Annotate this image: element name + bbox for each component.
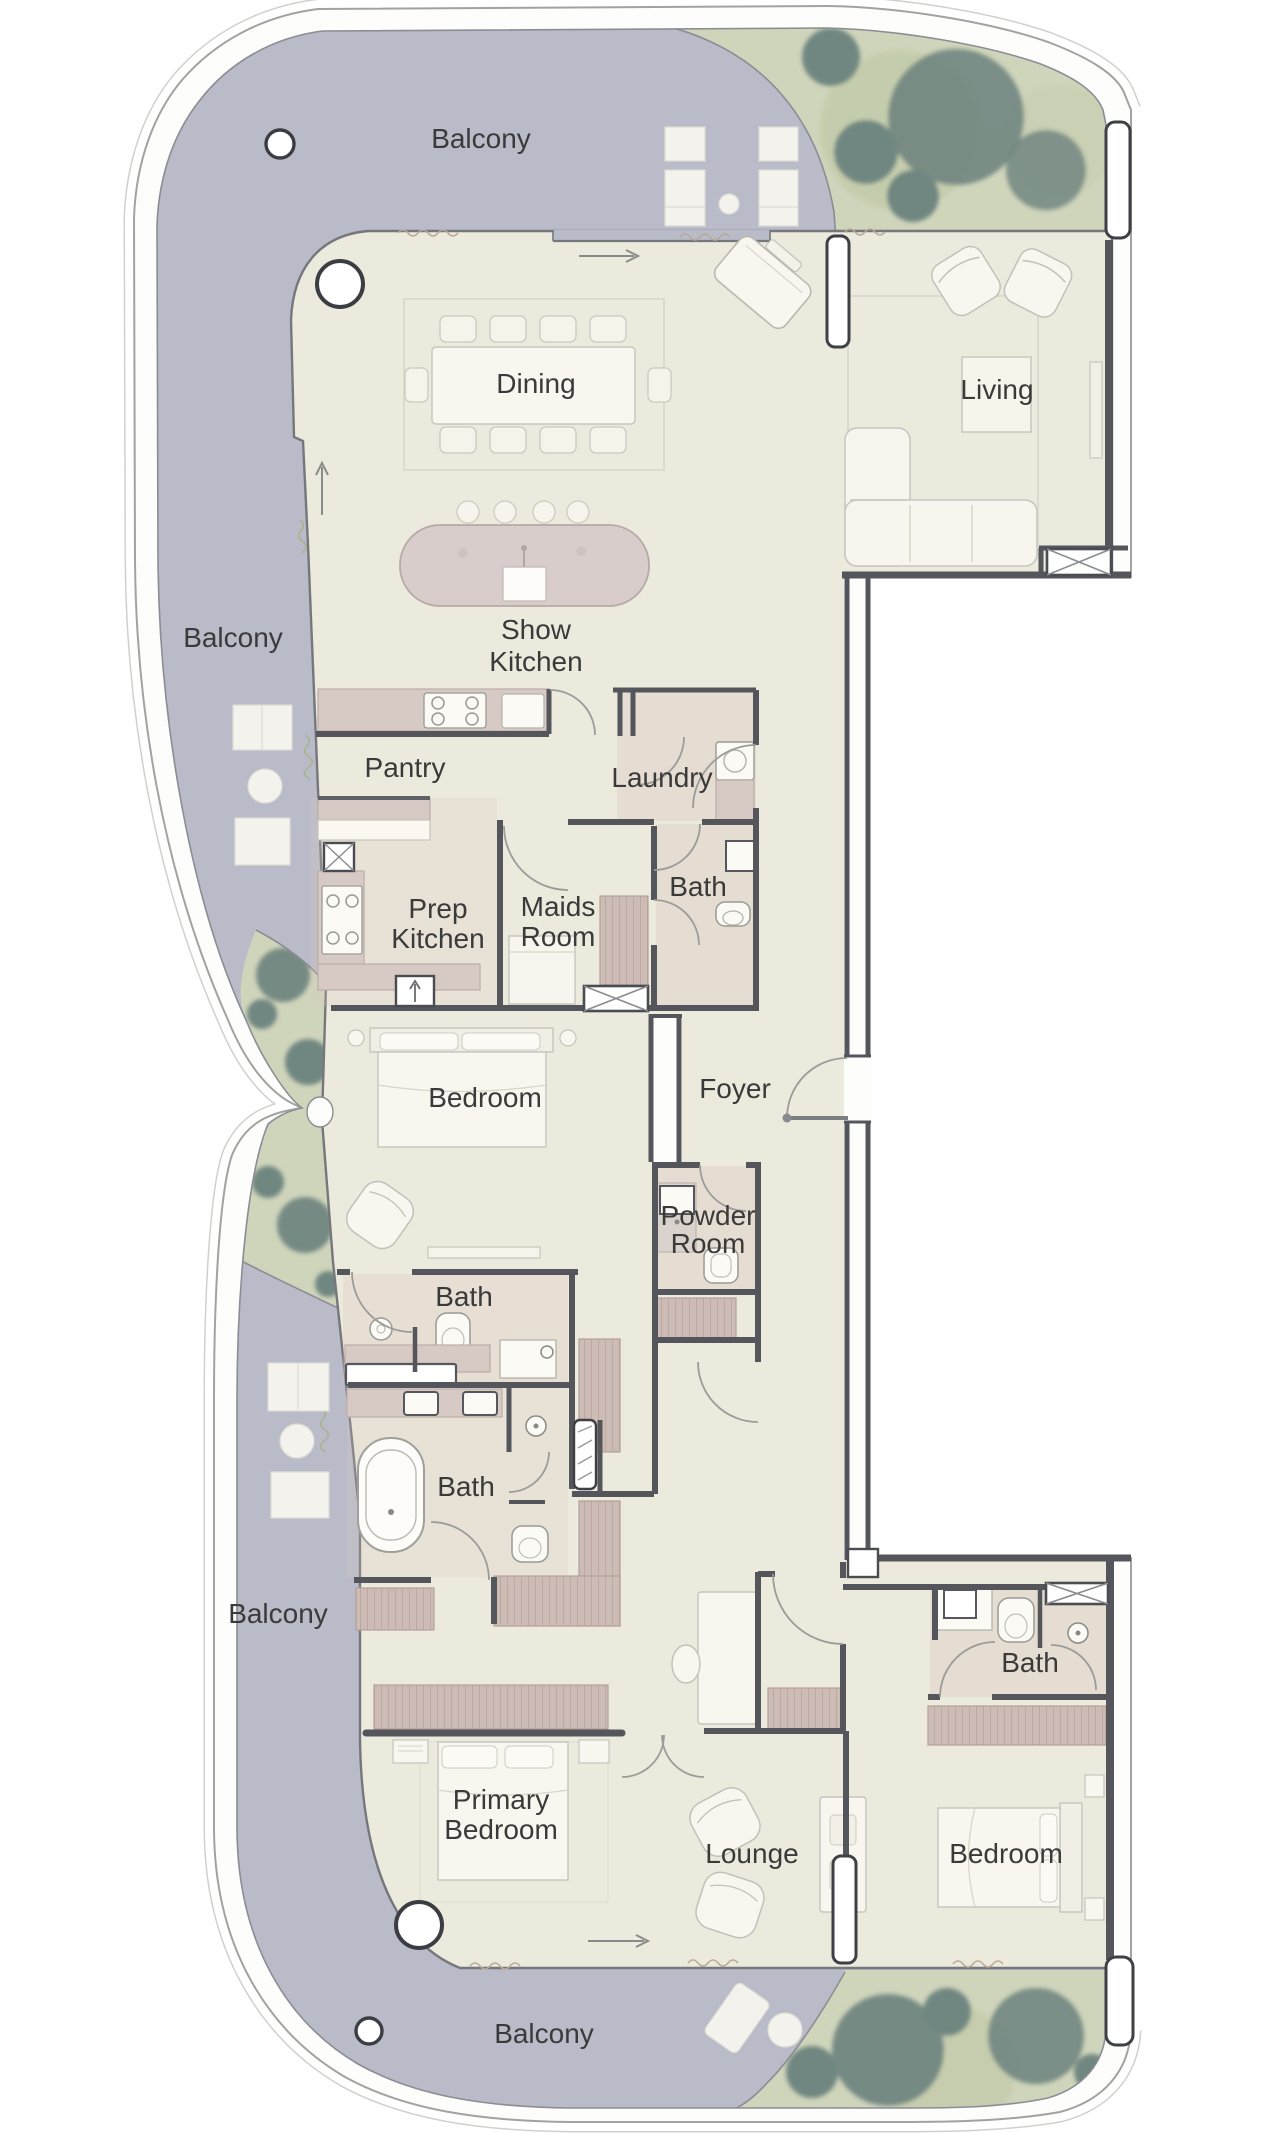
svg-text:Show: Show bbox=[501, 614, 572, 645]
svg-text:Living: Living bbox=[960, 374, 1033, 405]
svg-text:Foyer: Foyer bbox=[699, 1073, 771, 1104]
svg-text:Dining: Dining bbox=[496, 368, 575, 399]
svg-text:Bath: Bath bbox=[1001, 1647, 1059, 1678]
svg-text:Bedroom: Bedroom bbox=[428, 1082, 542, 1113]
svg-text:Room: Room bbox=[521, 921, 596, 952]
svg-text:Bedroom: Bedroom bbox=[444, 1814, 558, 1845]
svg-text:Powder: Powder bbox=[661, 1200, 756, 1231]
svg-text:Room: Room bbox=[671, 1228, 746, 1259]
svg-text:Balcony: Balcony bbox=[494, 2018, 594, 2049]
svg-text:Balcony: Balcony bbox=[228, 1598, 328, 1629]
svg-text:Kitchen: Kitchen bbox=[489, 646, 582, 677]
svg-text:Bedroom: Bedroom bbox=[949, 1838, 1063, 1869]
svg-text:Pantry: Pantry bbox=[365, 752, 446, 783]
svg-text:Primary: Primary bbox=[453, 1784, 549, 1815]
svg-text:Lounge: Lounge bbox=[705, 1838, 798, 1869]
svg-text:Bath: Bath bbox=[435, 1281, 493, 1312]
svg-text:Prep: Prep bbox=[408, 893, 467, 924]
svg-text:Bath: Bath bbox=[437, 1471, 495, 1502]
svg-text:Maids: Maids bbox=[521, 891, 596, 922]
svg-text:Balcony: Balcony bbox=[431, 123, 531, 154]
svg-text:Kitchen: Kitchen bbox=[391, 923, 484, 954]
svg-text:Balcony: Balcony bbox=[183, 622, 283, 653]
svg-text:Laundry: Laundry bbox=[611, 762, 712, 793]
svg-text:Bath: Bath bbox=[669, 871, 727, 902]
